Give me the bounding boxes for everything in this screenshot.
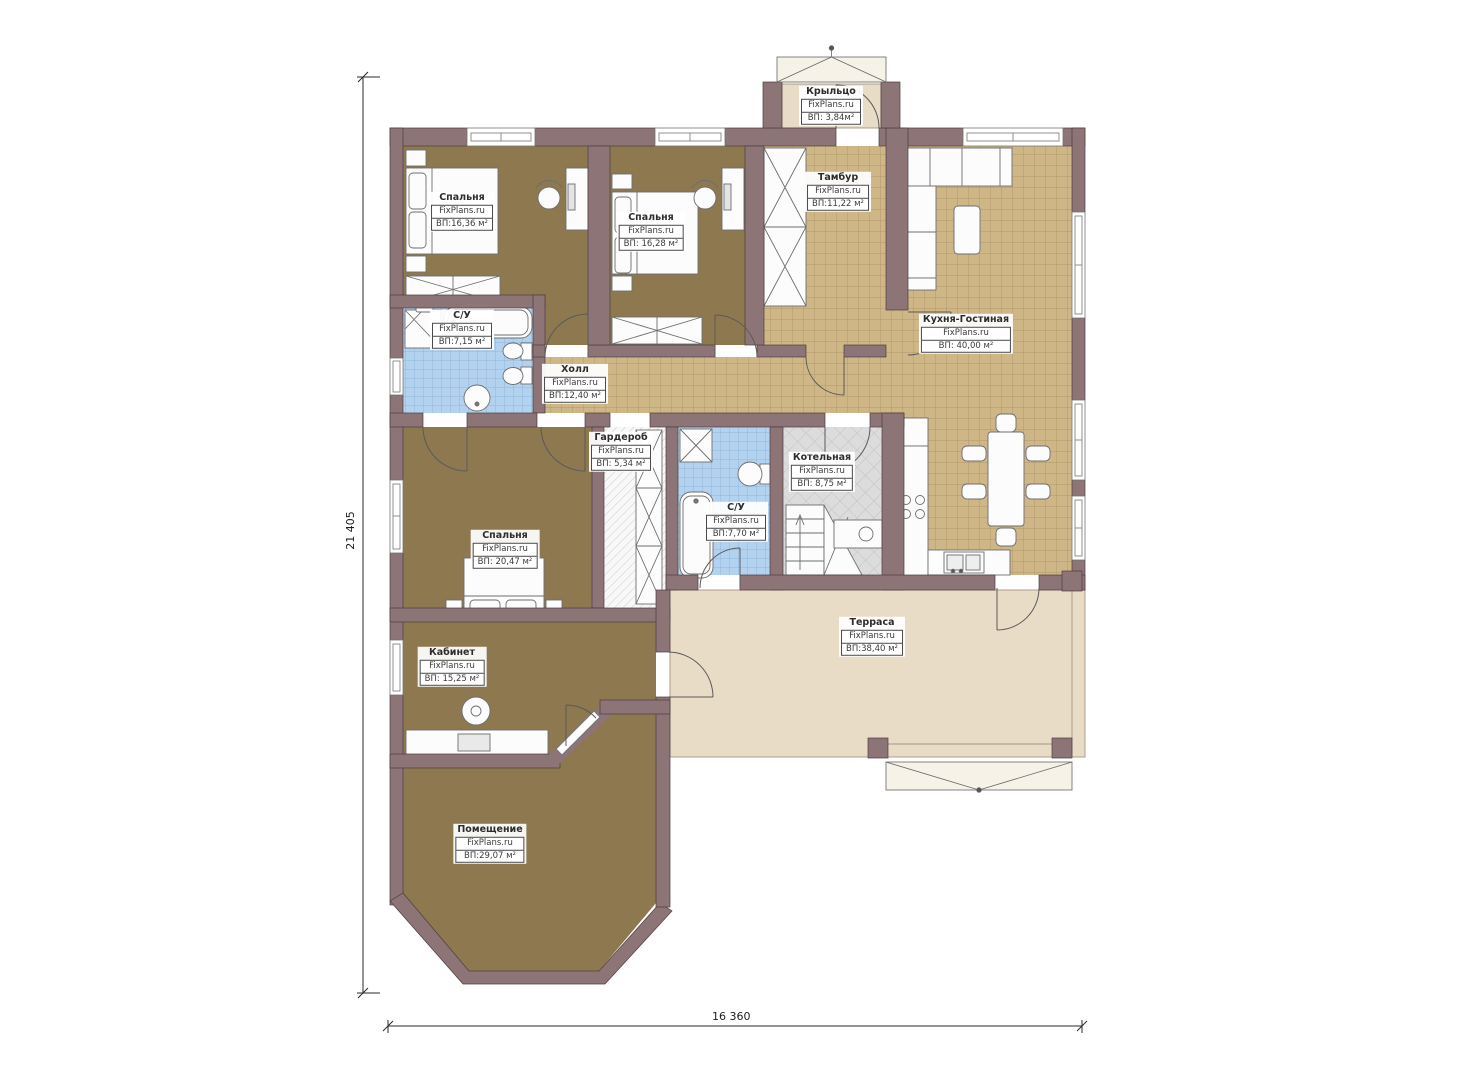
room-area: ВП:38,40 м²	[842, 643, 902, 655]
room-name: Помещение	[455, 825, 524, 836]
room-area: ВП: 40,00 м²	[922, 340, 1010, 352]
room-area: ВП:7,15 м²	[433, 336, 491, 348]
window-right-2	[1072, 400, 1085, 480]
dimension-width-label: 16 360	[712, 1010, 751, 1023]
room-label-bathroom-2: С/У FixPlans.ru ВП:7,70 м²	[704, 502, 768, 542]
watermark: FixPlans.ru	[545, 378, 605, 391]
room-label-wardrobe: Гардероб FixPlans.ru ВП: 5,34 м²	[589, 432, 653, 472]
room-label-boiler-room: Котельная FixPlans.ru ВП: 8,75 м²	[789, 452, 855, 492]
dimension-height-label: 21 405	[344, 511, 357, 550]
watermark: FixPlans.ru	[922, 328, 1010, 341]
room-area: ВП: 20,47 м²	[474, 556, 537, 568]
window-left-bathroom-1	[390, 358, 403, 395]
room-name: Кухня-Гостиная	[921, 315, 1011, 326]
watermark: FixPlans.ru	[620, 226, 683, 239]
room-area: ВП: 15,25 м²	[421, 673, 484, 685]
watermark: FixPlans.ru	[808, 186, 868, 199]
room-name: Кабинет	[420, 648, 485, 659]
room-area: ВП:11,22 м²	[808, 198, 868, 210]
room-area: ВП:12,40 м²	[545, 390, 605, 402]
room-label-bedroom-2: Спальня FixPlans.ru ВП: 16,28 м²	[617, 212, 686, 252]
room-name: Спальня	[619, 213, 684, 224]
room-label-bedroom-3: Спальня FixPlans.ru ВП: 20,47 м²	[471, 530, 540, 570]
room-label-bedroom-1: Спальня FixPlans.ru ВП:16,36 м²	[429, 192, 495, 232]
room-label-porch: Крыльцо FixPlans.ru ВП: 3,84м²	[799, 86, 863, 126]
watermark: FixPlans.ru	[421, 661, 484, 674]
window-top-bedroom-1	[467, 128, 535, 146]
room-label-utility-room: Помещение FixPlans.ru ВП:29,07 м²	[453, 824, 526, 864]
room-name: Тамбур	[807, 173, 869, 184]
closet-vestibule	[764, 148, 806, 306]
floor-plan-page: 21 405 16 360 Спальня FixPlans.ru ВП:16,…	[0, 0, 1474, 1080]
room-area: ВП: 16,28 м²	[620, 238, 683, 250]
window-top-bedroom-2	[655, 128, 725, 146]
room-name: Спальня	[473, 531, 538, 542]
room-name: С/У	[706, 503, 766, 514]
window-right-1	[1072, 212, 1085, 318]
window-left-bedroom-3	[390, 480, 403, 553]
room-area: ВП: 8,75 м²	[792, 478, 852, 490]
window-left-office	[390, 640, 403, 695]
watermark: FixPlans.ru	[432, 206, 492, 219]
porch-roof	[777, 46, 886, 82]
dimension-line-height	[357, 72, 380, 998]
room-label-vestibule: Тамбур FixPlans.ru ВП:11,22 м²	[805, 172, 871, 212]
room-label-terrace: Терраса FixPlans.ru ВП:38,40 м²	[839, 617, 905, 657]
room-label-hall: Холл FixPlans.ru ВП:12,40 м²	[542, 364, 608, 404]
watermark: FixPlans.ru	[802, 100, 860, 113]
window-top-kitchen	[963, 128, 1063, 146]
room-label-kitchen-living: Кухня-Гостиная FixPlans.ru ВП: 40,00 м²	[919, 314, 1013, 354]
window-right-3	[1072, 496, 1085, 560]
coffee-table	[954, 206, 980, 254]
room-area: ВП:29,07 м²	[456, 850, 523, 862]
room-name: С/У	[432, 311, 492, 322]
room-label-office: Кабинет FixPlans.ru ВП: 15,25 м²	[418, 647, 487, 687]
room-area: ВП: 5,34 м²	[592, 458, 650, 470]
wardrobe-bedroom-2	[612, 317, 702, 344]
room-name: Крыльцо	[801, 87, 861, 98]
room-name: Спальня	[431, 193, 493, 204]
room-name: Холл	[544, 365, 606, 376]
room-name: Терраса	[841, 618, 903, 629]
watermark: FixPlans.ru	[456, 838, 523, 851]
room-name: Котельная	[791, 453, 853, 464]
terrace-roof	[886, 762, 1072, 792]
watermark: FixPlans.ru	[592, 446, 650, 459]
watermark: FixPlans.ru	[433, 324, 491, 337]
watermark: FixPlans.ru	[707, 516, 765, 529]
watermark: FixPlans.ru	[842, 631, 902, 644]
watermark: FixPlans.ru	[474, 544, 537, 557]
room-name: Гардероб	[591, 433, 651, 444]
room-area: ВП: 3,84м²	[802, 112, 860, 124]
watermark: FixPlans.ru	[792, 466, 852, 479]
room-area: ВП:16,36 м²	[432, 218, 492, 230]
room-area: ВП:7,70 м²	[707, 528, 765, 540]
room-label-bathroom-1: С/У FixPlans.ru ВП:7,15 м²	[430, 310, 494, 350]
